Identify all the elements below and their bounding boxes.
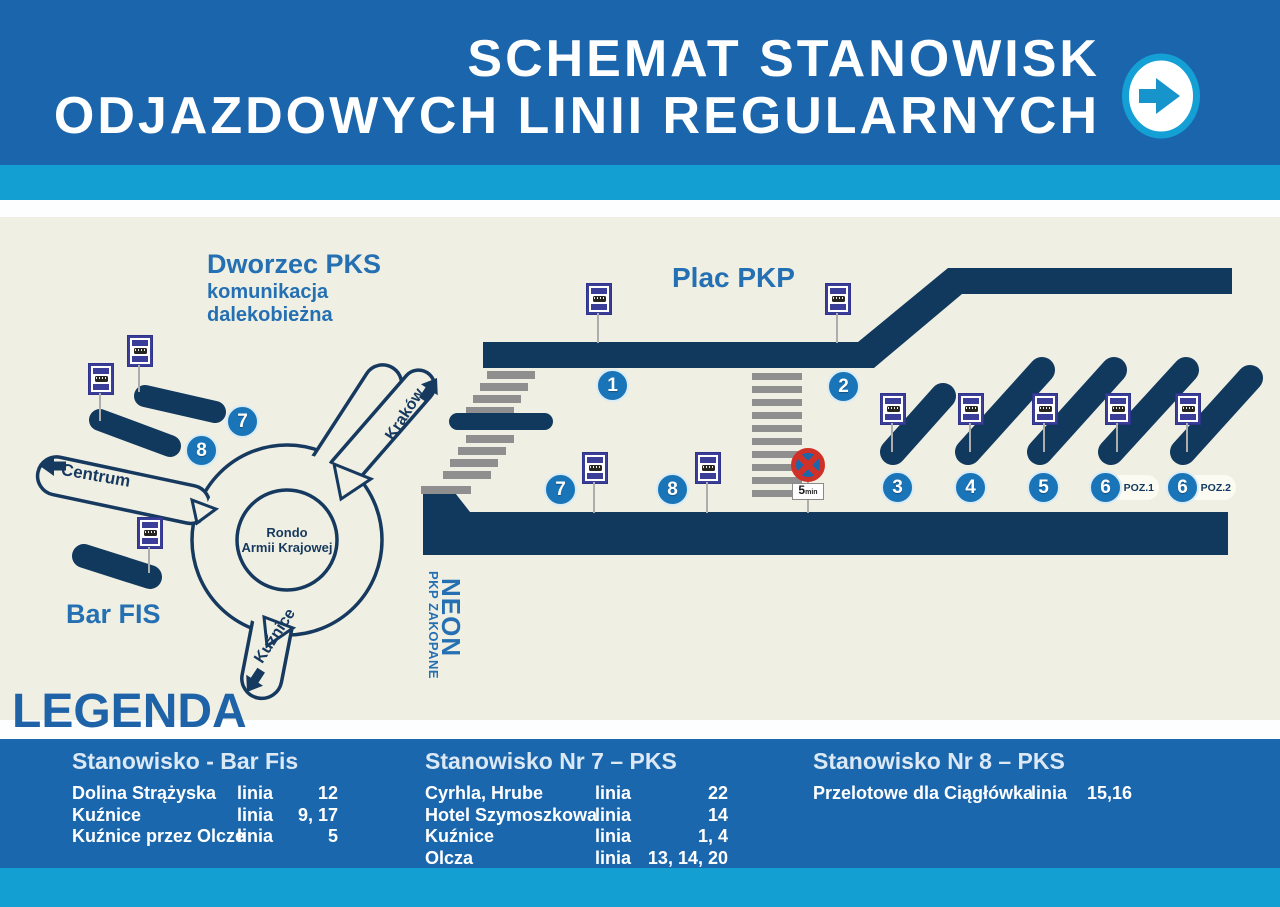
stand-circle-5: 5 [1027,471,1060,504]
pkp-zakopane-label: PKP ZAKOPANE [426,571,441,679]
stand-circle-2: 2 [827,370,860,403]
legend-column-header: Stanowisko Nr 8 – PKS [813,748,1132,775]
sign-pole [706,482,708,513]
bus-stop-sign [825,283,851,315]
stand-circle-7-dworzec: 7 [226,405,259,438]
legend-destination: Hotel Szymoszkowa [425,805,595,827]
legend-linia-label: linia [595,805,645,827]
legend-column-stand-7: Stanowisko Nr 7 – PKS Cyrhla, Hrube lini… [425,748,728,869]
bus-stop-sign [695,452,721,484]
stand-circle-6-poz1: 6 [1089,471,1122,504]
legend-destination: Kuźnice przez Olcze [72,826,237,848]
bus-icon [830,294,846,304]
bus-stop-sign [127,335,153,367]
bus-stop-sign [88,363,114,395]
legend-row: Dolina Strążyska linia 12 [72,783,338,805]
bus-stop-sign [137,517,163,549]
dworzec-pks-label: Dworzec PKS [207,249,381,280]
legend-destination: Przelotowe dla Ciągłówka [813,783,1031,805]
stand-circle-6-poz2: 6 [1166,471,1199,504]
bus-stop-sign [880,393,906,425]
bus-icon [93,374,109,384]
stairs [421,371,535,494]
rondo-label-line2: Armii Krajowej [227,540,347,555]
sign-pole [138,365,140,392]
legend-column-header: Stanowisko Nr 7 – PKS [425,748,728,775]
bar-fis-label: Bar FIS [66,599,161,630]
sign-pole [597,313,599,343]
legend-linia-label: linia [1031,783,1086,805]
legend-row: Hotel Szymoszkowa linia 14 [425,805,728,827]
legend-line-numbers: 12 [282,783,338,805]
legend-line-numbers: 22 [645,783,728,805]
five-min-value: 5 [798,484,805,497]
rondo-label-line1: Rondo [227,525,347,540]
legend-title: LEGENDA [12,684,247,739]
sign-pole [99,393,101,421]
bus-icon [700,463,716,473]
legend-linia-label: linia [237,805,282,827]
stand-circle-8-dworzec: 8 [185,434,218,467]
bus-icon [142,528,158,538]
legend-row: Cyrhla, Hrube linia 22 [425,783,728,805]
five-min-unit: min [805,489,817,496]
sign-pole [593,482,595,513]
bus-stop-sign [1175,393,1201,425]
dworzec-sub1-label: komunikacja [207,281,328,304]
bus-icon [591,294,607,304]
legend-line-numbers: 1, 4 [645,826,728,848]
legend-linia-label: linia [595,783,645,805]
stand-circle-3: 3 [881,471,914,504]
bus-stop-sign [582,452,608,484]
legend-destination: Cyrhla, Hrube [425,783,595,805]
bus-icon [587,463,603,473]
bus-icon [1037,404,1053,414]
bus-icon [1110,404,1126,414]
stand-circle-8-pks: 8 [656,473,689,506]
dworzec-sub2-label: dalekobieżna [207,304,333,327]
sign-pole [836,313,838,343]
legend-row: Olcza linia 13, 14, 20 [425,848,728,870]
bus-stop-sign [958,393,984,425]
legend-linia-label: linia [237,826,282,848]
legend-line-numbers: 5 [282,826,338,848]
rondo-label: Rondo Armii Krajowej [227,525,347,555]
legend-destination: Kuźnice [72,805,237,827]
bus-icon [132,346,148,356]
bus-icon [1180,404,1196,414]
sign-pole [1116,423,1118,452]
legend-linia-label: linia [595,848,645,870]
legend-destination: Dolina Strążyska [72,783,237,805]
bus-icon [885,404,901,414]
stand-circle-7-pks: 7 [544,473,577,506]
legend-row: Kuźnice linia 1, 4 [425,826,728,848]
legend-column-stand-8: Stanowisko Nr 8 – PKS Przelotowe dla Cią… [813,748,1132,805]
stand-circle-1: 1 [596,369,629,402]
legend-row: Przelotowe dla Ciągłówka linia 15,16 [813,783,1132,805]
sign-pole [148,547,150,573]
sign-pole [1043,423,1045,452]
mid-platform-bar [449,413,553,430]
sign-pole [1186,423,1188,452]
no-stopping-sign-icon [791,448,825,482]
pedestrian-crossing [752,373,802,497]
sign-pole [969,423,971,452]
legend-column-header: Stanowisko - Bar Fis [72,748,338,775]
stand-circle-4: 4 [954,471,987,504]
legend-line-numbers: 14 [645,805,728,827]
legend-linia-label: linia [595,826,645,848]
bus-stop-sign [1032,393,1058,425]
legend-linia-label: linia [237,783,282,805]
legend-destination: Kuźnice [425,826,595,848]
legend-row: Kuźnice przez Olcze linia 5 [72,826,338,848]
legend-line-numbers: 9, 17 [282,805,338,827]
legend-line-numbers: 15,16 [1086,783,1132,805]
legend-line-numbers: 13, 14, 20 [645,848,728,870]
plac-pkp-label: Plac PKP [672,262,795,294]
legend-destination: Olcza [425,848,595,870]
legend-row: Kuźnice linia 9, 17 [72,805,338,827]
sign-pole [891,423,893,452]
five-min-plate: 5min [792,483,824,500]
bus-stop-sign [1105,393,1131,425]
bus-stop-sign [586,283,612,315]
legend-column-bar-fis: Stanowisko - Bar Fis Dolina Strążyska li… [72,748,338,848]
bus-icon [963,404,979,414]
